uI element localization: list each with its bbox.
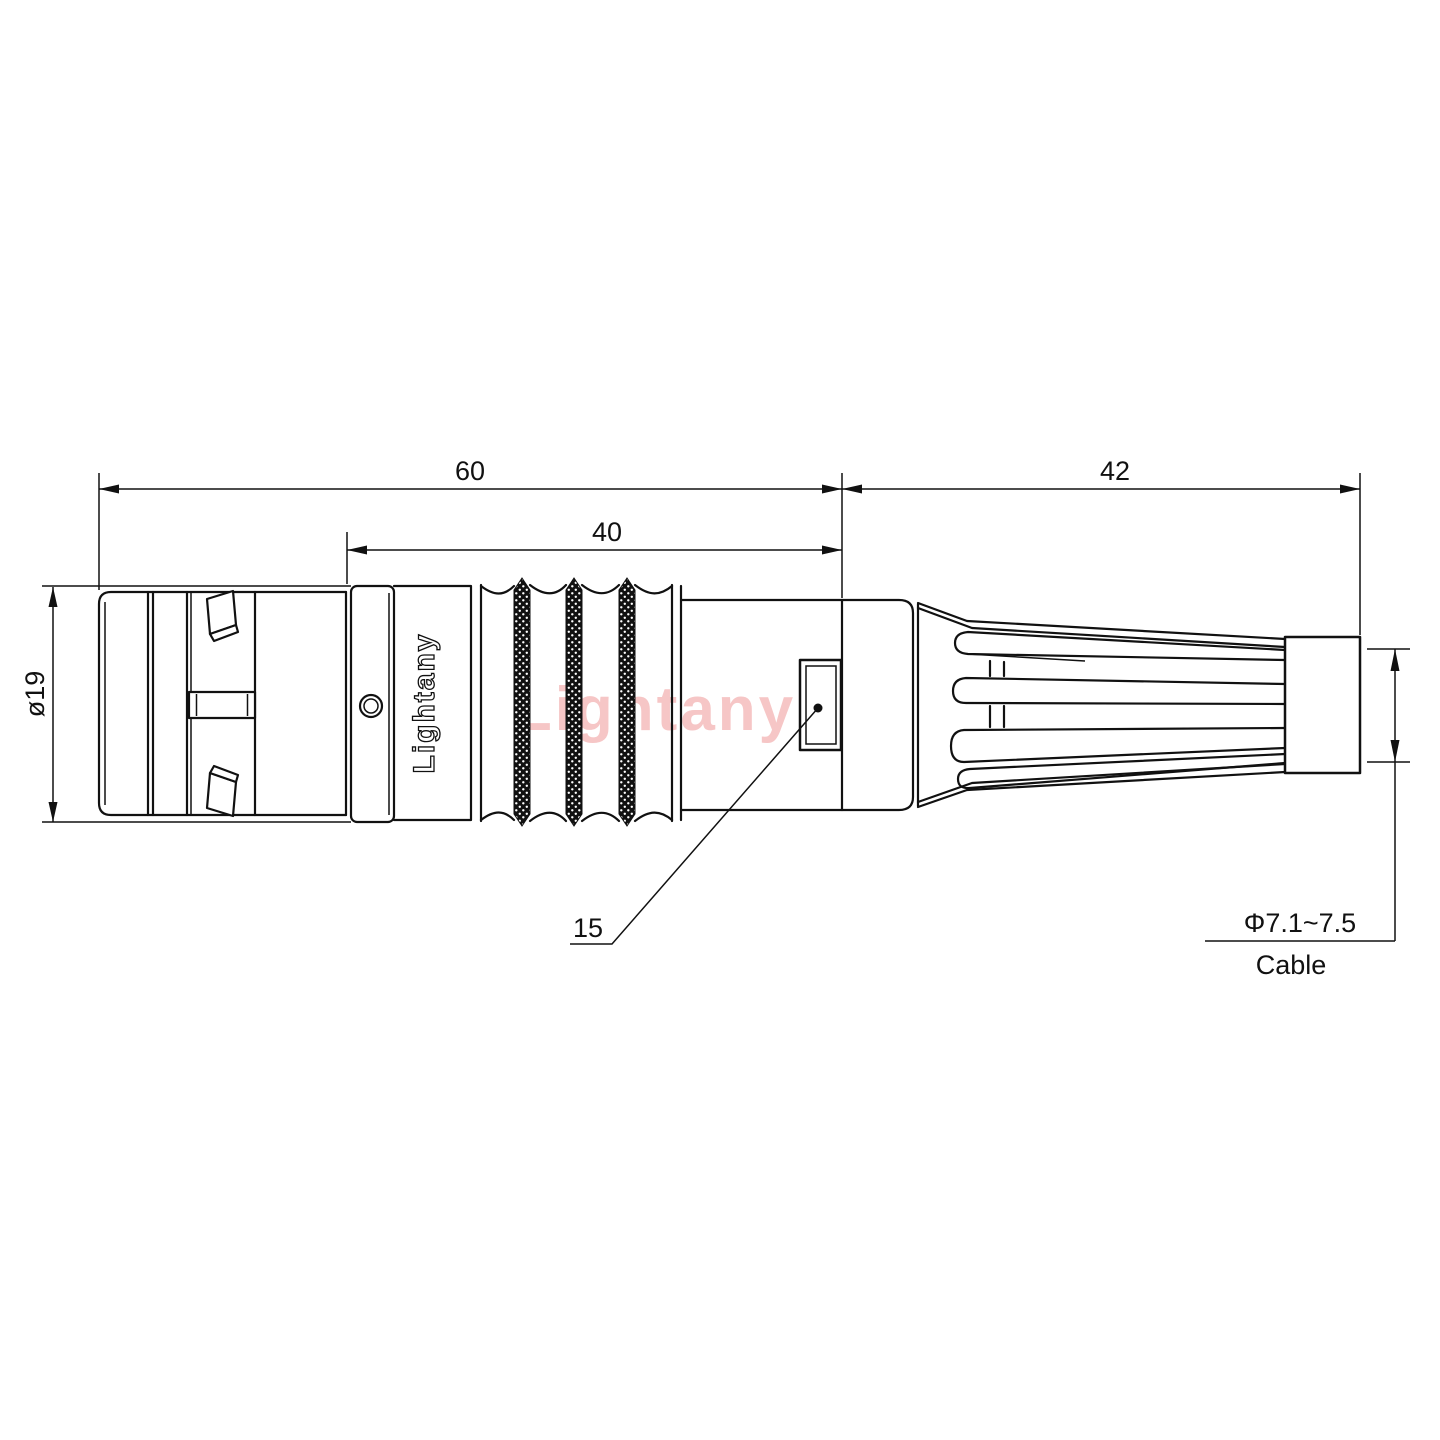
collar-body [351, 586, 394, 822]
dim-42-label: 42 [1100, 456, 1130, 486]
cable-range-label: Φ7.1~7.5 [1244, 908, 1356, 938]
key-slot-window [189, 692, 255, 718]
technical-drawing-canvas: Lightany Lightany [0, 0, 1440, 1440]
dim-dia19-label: ø19 [20, 671, 50, 718]
watermark-text: Lightany [514, 675, 796, 744]
coupling-key-top [207, 591, 238, 641]
cable-exit-sleeve [1285, 637, 1360, 773]
coupling-key-bottom [207, 766, 238, 816]
dim-overall-length: 60 [99, 456, 842, 494]
strain-relief-boot [918, 603, 1360, 807]
dim-15-label: 15 [573, 913, 603, 943]
dim-40-label: 40 [592, 517, 622, 547]
front-shell [99, 591, 346, 816]
brand-section: Lightany [394, 585, 481, 821]
boot-fin-2 [953, 678, 1285, 704]
dim-boot-length: 42 [842, 456, 1360, 494]
connector-drawing: Lightany Lightany [0, 0, 1440, 1440]
callout-15-dot [814, 704, 823, 713]
dim-60-label: 60 [455, 456, 485, 486]
knurl-band-1 [514, 578, 530, 826]
dim-front-length: 40 [347, 517, 842, 555]
knurl-band-2 [566, 578, 582, 826]
knurl-band-3 [619, 578, 635, 826]
cable-word-label: Cable [1256, 950, 1327, 980]
brand-body-text: Lightany [408, 633, 441, 774]
dim-outer-diameter: ø19 [20, 587, 58, 822]
collar-section [351, 586, 394, 822]
front-cap [99, 592, 148, 815]
